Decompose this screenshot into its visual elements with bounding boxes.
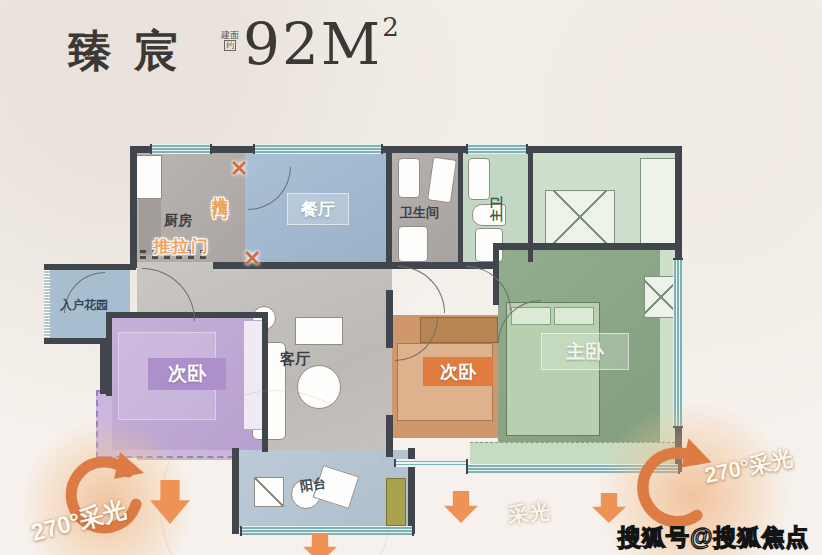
master-bath-label: 主卫 bbox=[488, 194, 506, 224]
kitchen-door-leaf bbox=[136, 155, 162, 199]
area-prefix: 建面 约 bbox=[219, 30, 241, 51]
wall-garden-top bbox=[44, 264, 136, 270]
window-dining-top bbox=[253, 144, 383, 154]
sliding-door-label-horizontal: 推拉门 bbox=[153, 235, 210, 258]
closet-xbox bbox=[545, 190, 615, 244]
wall-garden-bottom bbox=[44, 338, 106, 344]
daylight-center: 采光 bbox=[507, 497, 552, 529]
wall-living-orange-a bbox=[386, 290, 393, 348]
x-marker-bottom: ✕ bbox=[243, 246, 261, 272]
floor-plan-page: 臻宸 建面 约 92M2 bbox=[0, 0, 822, 555]
window-garden-left bbox=[44, 270, 50, 338]
down-arrow-icon-3 bbox=[444, 491, 478, 523]
bath-sink bbox=[398, 226, 428, 262]
wall-top bbox=[130, 146, 682, 153]
x-marker-top: ✕ bbox=[230, 156, 248, 182]
bedroom-left-label: 次卧 bbox=[148, 358, 226, 390]
wall-purple-left bbox=[106, 312, 112, 396]
closet-column bbox=[640, 158, 678, 244]
wall-bath-mbath bbox=[458, 150, 463, 268]
living-label: 客厅 bbox=[280, 350, 310, 369]
pillow-2 bbox=[554, 307, 594, 325]
window-kitchen-top bbox=[150, 144, 212, 154]
area-prefix-top: 建面 bbox=[219, 30, 241, 40]
bathroom-label: 卫生间 bbox=[400, 204, 439, 222]
area-prefix-bottom: 约 bbox=[224, 40, 236, 51]
living-table bbox=[295, 317, 343, 345]
bath-door-arc bbox=[398, 266, 445, 313]
page-title: 臻宸 bbox=[68, 22, 200, 81]
bedroom-right-label: 次卧 bbox=[423, 357, 493, 386]
kitchen-label: 厨房 bbox=[164, 212, 192, 230]
window-mbath-top bbox=[466, 144, 528, 154]
mbath-shower bbox=[468, 158, 490, 200]
master-bedroom-label: 主卧 bbox=[541, 333, 629, 370]
area-number: 92M bbox=[243, 10, 382, 78]
sliding-door-label-vertical: 推拉门 bbox=[209, 184, 230, 190]
wall-master-top bbox=[493, 243, 680, 250]
wall-living-orange-b bbox=[386, 415, 393, 457]
area-value: 92M2 bbox=[243, 10, 401, 78]
wall-left-kitchen bbox=[130, 146, 137, 268]
watermark-bottom-right: 搜狐号@搜狐焦点韶关站 bbox=[618, 522, 822, 555]
entry-garden-label: 入户花园 bbox=[60, 297, 108, 314]
bath-vanity bbox=[398, 158, 420, 198]
window-orange-bottom bbox=[394, 459, 468, 467]
area-exponent: 2 bbox=[382, 12, 401, 42]
wall-dining-bath bbox=[386, 150, 392, 268]
dining-label: 餐厅 bbox=[287, 193, 349, 225]
